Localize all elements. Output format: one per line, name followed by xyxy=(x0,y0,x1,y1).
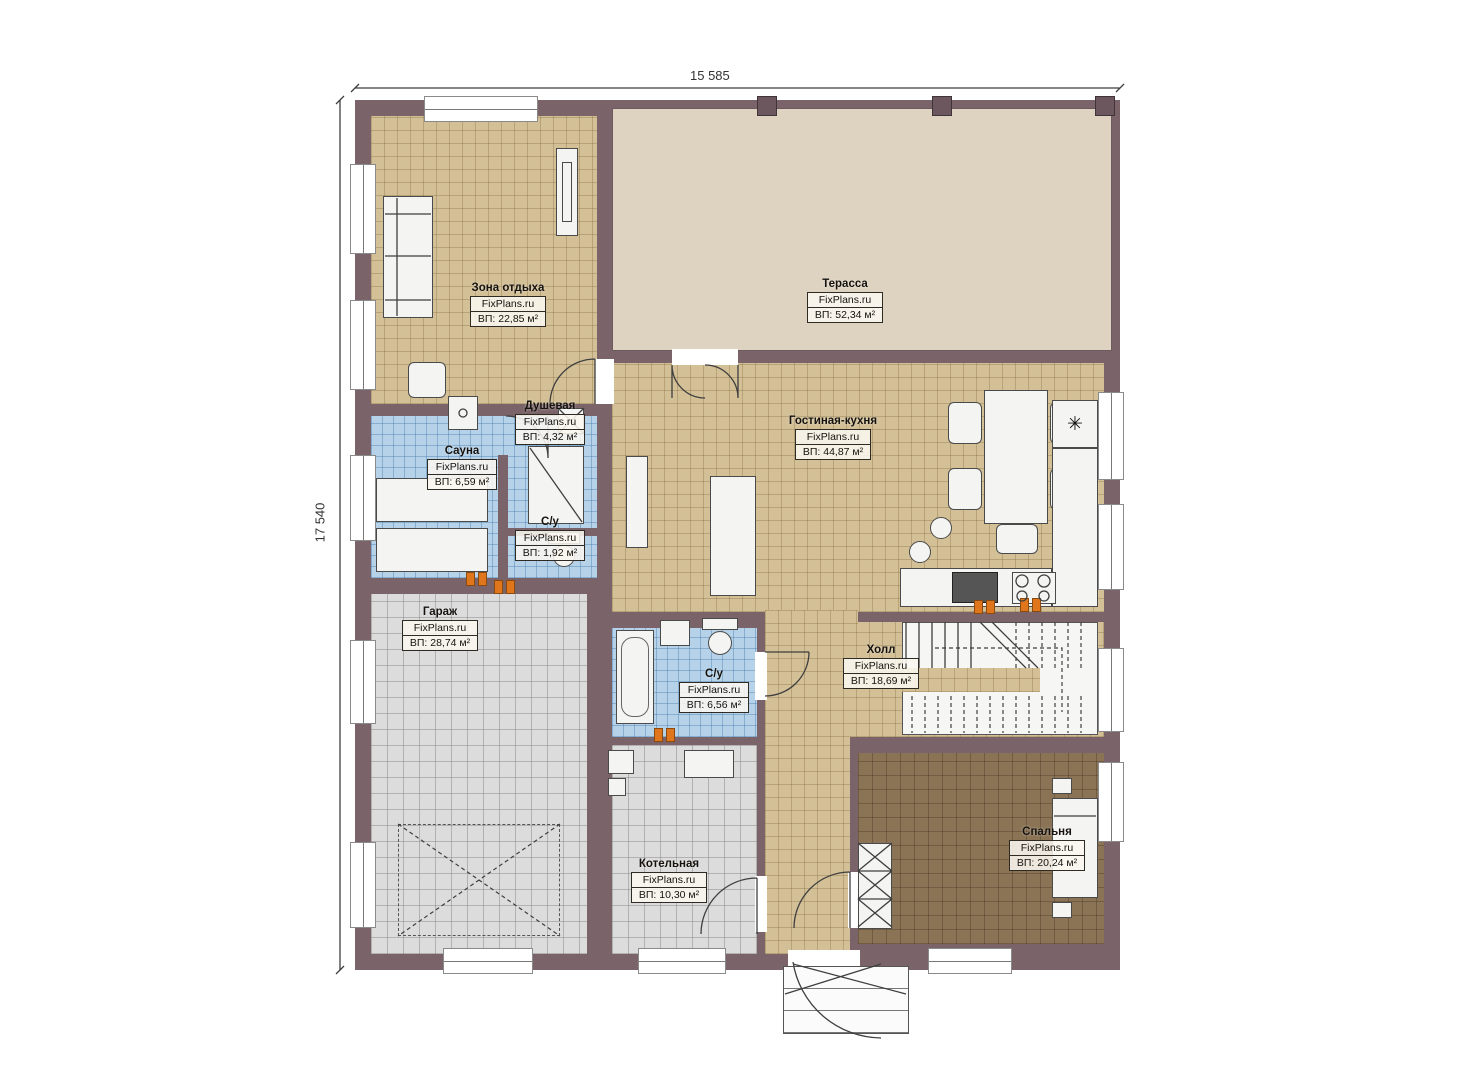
brand-link: FixPlans.ru xyxy=(471,297,545,312)
room-label-bathroom: С/у FixPlans.ru ВП: 6,56 м² xyxy=(662,668,766,713)
entrance-porch xyxy=(783,966,909,1034)
dining-table xyxy=(984,390,1048,524)
room-label-living-kitchen: Гостиная-кухня FixPlans.ru ВП: 44,87 м² xyxy=(768,415,898,460)
shower-cabin xyxy=(528,446,584,524)
window xyxy=(350,455,376,541)
window xyxy=(1098,648,1124,732)
brand-link: FixPlans.ru xyxy=(844,659,918,674)
sauna-stove xyxy=(448,396,478,430)
radiator-marker xyxy=(654,728,663,742)
room-label-terrace: Терасса FixPlans.ru ВП: 52,34 м² xyxy=(785,278,905,323)
toilet-bowl xyxy=(708,631,732,655)
room-label-bedroom: Спальня FixPlans.ru ВП: 20,24 м² xyxy=(988,826,1106,871)
window xyxy=(638,948,726,974)
room-label-hall: Холл FixPlans.ru ВП: 18,69 м² xyxy=(826,644,936,689)
nightstand xyxy=(1052,902,1072,918)
radiator-marker xyxy=(1032,598,1041,612)
window xyxy=(350,164,376,254)
sofa xyxy=(383,196,433,318)
window xyxy=(350,842,376,928)
brand-link: FixPlans.ru xyxy=(1010,841,1084,856)
kitchen-sink-unit xyxy=(952,572,998,603)
brand-link: FixPlans.ru xyxy=(680,683,748,698)
radiator-marker xyxy=(666,728,675,742)
room-label-shower: Душевая FixPlans.ru ВП: 4,32 м² xyxy=(508,400,592,445)
utility-cabinet xyxy=(684,750,734,778)
terrace-column xyxy=(932,96,952,116)
brand-link: FixPlans.ru xyxy=(403,621,477,636)
radiator-marker xyxy=(494,580,503,594)
sauna-bench xyxy=(376,528,488,572)
radiator-marker xyxy=(1020,598,1029,612)
kitchen-counter-right xyxy=(1052,448,1098,607)
wall-lounge-sauna xyxy=(371,404,505,416)
chair xyxy=(996,524,1038,554)
window xyxy=(928,948,1012,974)
boiler-unit xyxy=(608,778,626,796)
opening-living-hall xyxy=(765,610,858,624)
dimension-line-left xyxy=(336,96,344,974)
brand-link: FixPlans.ru xyxy=(796,430,870,445)
dimension-top-label: 15 585 xyxy=(690,68,730,83)
terrace-column xyxy=(1095,96,1115,116)
window xyxy=(424,96,538,122)
room-floor-corridor xyxy=(765,737,850,954)
snowflake-icon: ✳ xyxy=(1067,413,1083,436)
room-label-sauna: Сауна FixPlans.ru ВП: 6,59 м² xyxy=(412,445,512,490)
radiator-marker xyxy=(986,600,995,614)
window xyxy=(350,300,376,390)
dimension-left-label: 17 540 xyxy=(312,503,327,543)
room-label-garage: Гараж FixPlans.ru ВП: 28,74 м² xyxy=(384,606,496,651)
radiator-marker xyxy=(506,580,515,594)
sink-bowl xyxy=(930,517,952,539)
bathtub-inner xyxy=(621,637,649,717)
dimension-line-top xyxy=(351,84,1124,92)
nightstand xyxy=(1052,778,1072,794)
brand-link: FixPlans.ru xyxy=(428,460,496,475)
brand-link: FixPlans.ru xyxy=(516,415,584,430)
parking-space xyxy=(398,824,560,936)
brand-link: FixPlans.ru xyxy=(516,531,584,546)
wardrobe xyxy=(858,843,892,929)
washbasin xyxy=(660,620,690,646)
terrace-column xyxy=(757,96,777,116)
toilet-tank xyxy=(702,618,738,630)
radiator-marker xyxy=(478,572,487,586)
cabinet xyxy=(626,456,648,548)
window xyxy=(1098,504,1124,590)
tall-cabinet xyxy=(710,476,756,596)
radiator-marker xyxy=(466,572,475,586)
brand-link: FixPlans.ru xyxy=(808,293,882,308)
door-opening-terrace xyxy=(672,349,738,365)
sink-bowl xyxy=(909,541,931,563)
brand-link: FixPlans.ru xyxy=(632,873,706,888)
room-label-boiler: Котельная FixPlans.ru ВП: 10,30 м² xyxy=(610,858,728,903)
door-opening-boiler xyxy=(755,876,767,932)
door-opening-lounge xyxy=(595,359,614,404)
floor-plan: 15 585 17 540 xyxy=(0,0,1473,1080)
room-label-lounge: Зона отдыха FixPlans.ru ВП: 22,85 м² xyxy=(448,282,568,327)
room-label-wc-small: С/у FixPlans.ru ВП: 1,92 м² xyxy=(508,516,592,561)
fridge: ✳ xyxy=(1052,400,1098,448)
boiler-unit xyxy=(608,750,634,774)
window xyxy=(443,948,533,974)
tv-screen xyxy=(562,162,572,222)
chair xyxy=(948,402,982,444)
coffee-table xyxy=(408,362,446,398)
chair xyxy=(948,468,982,510)
window xyxy=(350,640,376,724)
radiator-marker xyxy=(974,600,983,614)
window xyxy=(1098,392,1124,480)
